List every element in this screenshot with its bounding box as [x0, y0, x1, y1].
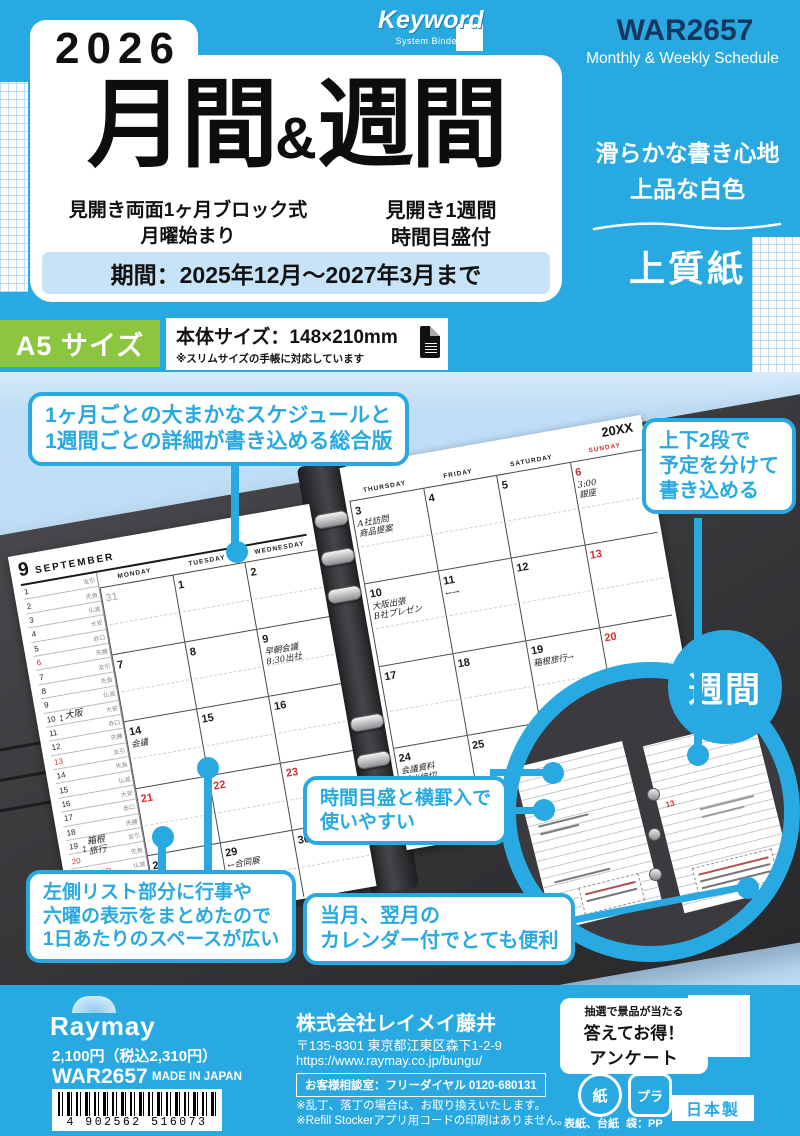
callout-mini-calendar-line2: カレンダー付でとても便利	[320, 929, 558, 954]
cell-midline	[255, 587, 322, 600]
raymay-logo: Raymay	[50, 1011, 156, 1042]
day-cell: 10大阪出張 B社プレゼン	[364, 571, 452, 665]
day-list-number: 3	[28, 614, 41, 625]
day-cell: 31	[100, 576, 184, 655]
day-number: 14	[128, 725, 142, 739]
day-cell: 7	[112, 643, 196, 722]
rokuyo: 大安	[120, 788, 133, 799]
day-number: 7	[116, 659, 124, 672]
barcode: 4 902562 516073	[52, 1089, 222, 1131]
day-number: 6	[574, 466, 582, 479]
day-number: 23	[285, 766, 299, 780]
body-size-box: 本体サイズ：148×210mm ※スリムサイズの手帳に対応しています	[166, 318, 448, 370]
callout-time-scale-line2: 使いやすい	[320, 811, 491, 835]
feature-right: 見開き1週間 時間目盛付	[336, 198, 546, 252]
survey-bubble: 抽選で景品が当たる 答えてお得！ アンケート	[560, 998, 708, 1074]
company-url: https://www.raymay.co.jp/bungu/	[296, 1053, 482, 1068]
size-badge: A5 サイズ	[0, 320, 160, 367]
day-number: 29	[224, 846, 238, 860]
main-title: 月間&週間	[30, 76, 562, 175]
cell-midline	[523, 591, 591, 604]
rokuyo: 先負	[115, 760, 128, 771]
feature-left-line2: 月曜始まり	[48, 224, 328, 250]
day-list-number: 4	[31, 628, 44, 639]
span-event-text: 大阪	[64, 709, 83, 721]
made-in-japan-badge: 日本製	[672, 1095, 754, 1121]
connector-dot	[687, 744, 709, 766]
day-cell: 13	[584, 533, 672, 627]
callout-overview: 1ヶ月ごとの大まかなスケジュールと 1週間ごとの詳細が書き込める総合版	[28, 392, 409, 466]
cell-midline	[435, 521, 503, 534]
day-cell: 9早朝会議 8:30出社	[257, 617, 341, 696]
connector-line	[490, 769, 546, 776]
rokuyo: 赤口	[93, 632, 106, 643]
survey-line3: アンケート	[568, 1044, 700, 1069]
day-cell: 16	[268, 684, 352, 763]
day-number: 25	[471, 738, 485, 752]
day-list-number: 14	[56, 770, 69, 781]
rokuyo: 仏滅	[133, 859, 146, 870]
connector-dot	[197, 757, 219, 779]
rokuyo: 先勝	[110, 731, 123, 742]
body-size-note: ※スリムサイズの手帳に対応しています	[176, 351, 438, 366]
recycle-paper-label: 表紙、台紙	[564, 1115, 619, 1131]
day-cell: 22	[208, 764, 292, 843]
day-number: 4	[428, 492, 436, 505]
survey-line2: 答えてお得！	[568, 1019, 700, 1044]
rokuyo: 赤口	[123, 802, 136, 813]
cell-midline	[206, 733, 273, 746]
callout-left-list: 左側リスト部分に行事や 六曜の表示をまとめたので 1日あたりのスペースが広い	[26, 870, 296, 963]
connector-line	[204, 774, 212, 877]
cell-midline	[122, 679, 189, 692]
callout-time-scale: 時間目盛と横罫入で 使いやすい	[303, 776, 508, 845]
day-number: 15	[201, 712, 215, 726]
day-list-number: 15	[58, 784, 71, 795]
company-address: 〒135-8301 東京都江東区森下1-2-9	[296, 1035, 502, 1054]
day-cell: 1	[172, 563, 256, 642]
day-cell: 17	[379, 654, 467, 748]
day-number: 31	[105, 591, 119, 605]
cell-midline	[596, 578, 664, 591]
cell-midline	[302, 855, 369, 868]
day-list-number: 9	[43, 699, 56, 710]
day-list-number: 5	[33, 643, 46, 654]
keyword-logo: Keyword	[378, 8, 478, 33]
month-number: 9	[17, 559, 31, 583]
binder-ring-small	[649, 868, 662, 881]
callout-left-list-line3: 1日あたりのスペースが広い	[43, 928, 279, 952]
connector-dot	[533, 799, 555, 821]
day-cell: 2	[245, 550, 329, 629]
grid-pattern-left	[0, 82, 28, 292]
day-number: 20	[603, 630, 617, 644]
rokuyo: 先負	[100, 675, 113, 686]
day-number: 13	[589, 548, 603, 562]
callout-mini-calendar: 当月、翌月の カレンダー付でとても便利	[303, 893, 575, 965]
day-number: 10	[369, 586, 383, 600]
callout-overview-line1: 1ヶ月ごとの大まかなスケジュールと	[45, 403, 392, 429]
barcode-number: 4 902562 516073	[58, 1116, 216, 1129]
connector-line	[694, 518, 702, 750]
paper-claim-2: 上品な白色	[580, 170, 795, 204]
rokuyo: 仏滅	[88, 604, 101, 615]
day-number: 9	[261, 633, 269, 646]
cell-midline	[279, 721, 346, 734]
title-weekly: 週間	[317, 70, 505, 179]
feature-right-line2: 時間目盛付	[336, 225, 546, 252]
weekly-page-right: 13	[643, 719, 795, 913]
keyword-logo-subtitle: System Binder	[378, 36, 478, 46]
rokuyo: 先負	[85, 590, 98, 601]
cell-midline	[449, 604, 517, 617]
survey-line1: 抽選で景品が当たる	[568, 1003, 700, 1019]
company-name: 株式会社レイメイ藤井	[296, 1007, 496, 1036]
recycle-paper-icon: 紙	[578, 1073, 622, 1117]
cell-midline	[110, 612, 177, 625]
cell-midline	[508, 508, 576, 521]
day-number: 8	[189, 646, 197, 659]
rokuyo: 友引	[98, 660, 111, 671]
title-monthly: 月間	[87, 70, 275, 179]
rokuyo: 仏滅	[103, 689, 116, 700]
day-list-number: 1	[23, 586, 36, 597]
day-cell: 12	[511, 545, 599, 639]
callout-overview-line2: 1週間ごとの詳細が書き込める総合版	[45, 429, 392, 455]
footer-note-1: ※乱丁、落丁の場合は、お取り換えいたします。	[296, 1097, 546, 1113]
day-number: 22	[212, 779, 226, 793]
cell-midline	[390, 699, 458, 712]
day-cell: 18	[452, 641, 540, 735]
binder-ring-small	[648, 828, 661, 841]
feature-left: 見開き両面1ヶ月ブロック式 月曜始まり	[48, 198, 328, 249]
footer: Raymay 2,100円（税込2,310円） WAR2657 MADE IN …	[0, 985, 800, 1136]
day-cell: 4	[423, 476, 511, 570]
day-number: 3	[354, 505, 362, 518]
cell-midline	[218, 800, 285, 813]
rokuyo: 先勝	[95, 646, 108, 657]
day-number: 18	[457, 656, 471, 670]
barcode-bars	[58, 1092, 216, 1116]
rokuyo: 大安	[105, 703, 118, 714]
binder-ring-small	[647, 788, 660, 801]
paper-claim-1: 滑らかな書き心地	[580, 134, 795, 168]
day-number: 24	[398, 751, 412, 765]
connector-dot	[226, 541, 248, 563]
package-sheet: Keyword System Binder WAR2657 Monthly & …	[0, 0, 800, 1136]
wave-divider	[592, 218, 782, 234]
day-list-number: 7	[38, 671, 51, 682]
cell-midline	[183, 600, 250, 613]
cell-midline	[194, 667, 261, 680]
day-number: 2	[250, 566, 258, 579]
callout-two-rows-line2: 予定を分けて	[659, 454, 779, 479]
span-event-text: 箱根 旅行	[86, 836, 107, 858]
made-in-japan-note: MADE IN JAPAN	[152, 1071, 242, 1083]
refill-icon	[420, 326, 440, 358]
feature-left-line1: 見開き両面1ヶ月ブロック式	[48, 198, 328, 224]
callout-left-list-line1: 左側リスト部分に行事や	[43, 881, 279, 905]
day-cell: 5	[496, 463, 584, 557]
callout-two-rows-line3: 書き込める	[659, 479, 779, 504]
price: 2,100円（税込2,310円）	[52, 1045, 217, 1066]
product-subtitle: Monthly & Weekly Schedule	[565, 50, 800, 68]
rokuyo: 仏滅	[118, 774, 131, 785]
day-list-number: 11	[48, 728, 61, 739]
rokuyo: 赤口	[108, 717, 121, 728]
product-code: WAR2657	[575, 14, 795, 48]
day-list-number: 17	[63, 813, 76, 824]
rokuyo: 友引	[83, 575, 96, 586]
day-number: 21	[140, 792, 154, 806]
cell-midline	[145, 813, 212, 826]
day-number: 19	[530, 643, 544, 657]
day-number: 5	[501, 479, 509, 492]
day-cell: 8	[184, 630, 268, 709]
callout-left-list-line2: 六曜の表示をまとめたので	[43, 905, 279, 929]
day-list-number: 13	[53, 756, 66, 767]
day-number: 17	[383, 669, 397, 683]
footer-note-2: ※Refill Stockerアプリ用コードの印刷はありません。	[296, 1112, 569, 1128]
rokuyo: 先勝	[125, 816, 138, 827]
rokuyo: 先負	[130, 845, 143, 856]
day-list-number: 2	[26, 600, 39, 611]
year-label: 2026	[48, 24, 188, 74]
callout-mini-calendar-line1: 当月、翌月の	[320, 904, 558, 929]
rokuyo: 友引	[113, 745, 126, 756]
connector-line	[231, 452, 239, 552]
weekly-circle-label: 週間	[668, 630, 782, 744]
day-list-number: 16	[61, 798, 74, 809]
recycle-plastic-label: 袋：PP	[626, 1115, 663, 1131]
day-cell: 3A社訪問 商品提案	[349, 489, 437, 583]
support-phone-box: お客様相談室：フリーダイヤル 0120-680131	[296, 1073, 546, 1097]
title-ampersand: &	[275, 106, 317, 171]
day-cell: 14会議	[123, 710, 207, 789]
day-number: 12	[516, 561, 530, 575]
body-size: 本体サイズ：148×210mm	[176, 322, 438, 349]
connector-dot	[737, 877, 759, 899]
cell-midline	[464, 686, 532, 699]
day-list-number: 6	[36, 657, 49, 668]
callout-time-scale-line1: 時間目盛と横罫入で	[320, 787, 491, 811]
day-list-number: 8	[41, 685, 54, 696]
day-number: 16	[273, 699, 287, 713]
day-cell: 11←→	[437, 558, 525, 652]
connector-dot	[542, 762, 564, 784]
rokuyo: 大安	[90, 618, 103, 629]
recycle-plastic-icon: プラ	[628, 1073, 672, 1117]
feature-right-line1: 見開き1週間	[336, 198, 546, 225]
day-number: 1	[177, 579, 185, 592]
rokuyo: 友引	[128, 831, 141, 842]
callout-two-rows-line1: 上下2段で	[659, 429, 779, 454]
period-band: 期間：2025年12月～2027年3月まで	[42, 252, 550, 294]
callout-two-rows: 上下2段で 予定を分けて 書き込める	[642, 418, 796, 514]
connector-dot	[152, 826, 174, 848]
day-list-number: 12	[51, 742, 64, 753]
footer-product-code: WAR2657	[52, 1065, 148, 1089]
day-list-number: 18	[66, 827, 79, 838]
qr-code-placeholder	[688, 995, 750, 1057]
paper-type: 上質紙	[580, 240, 795, 292]
day-number: 11	[442, 574, 456, 588]
